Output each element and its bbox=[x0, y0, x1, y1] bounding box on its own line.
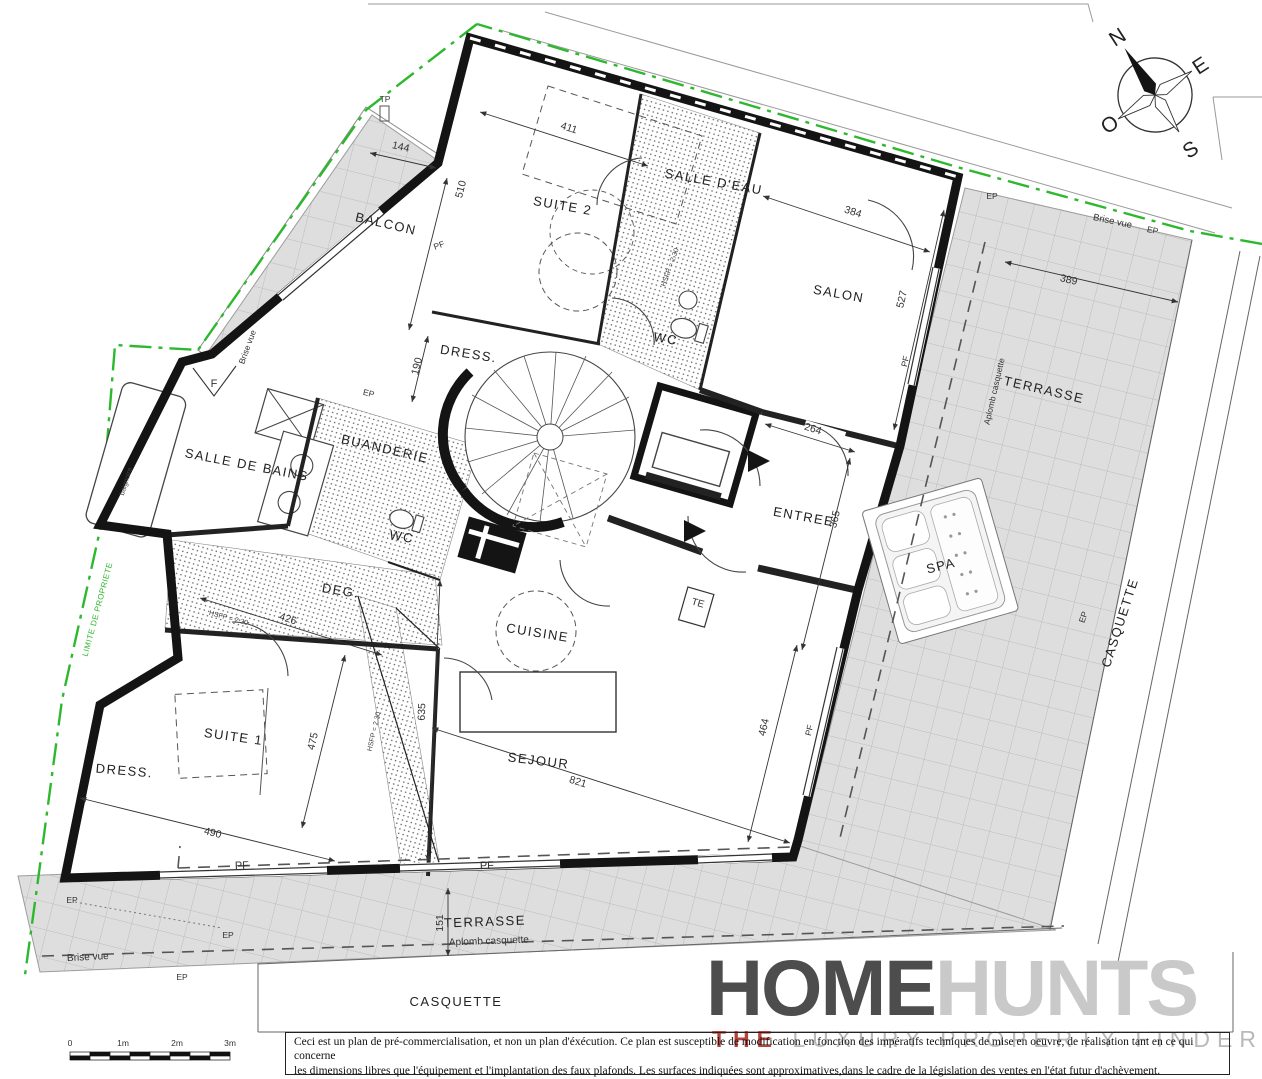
scale-0: 0 bbox=[68, 1038, 73, 1048]
compass-e: E bbox=[1188, 53, 1212, 80]
pf-bottom-2: PF bbox=[480, 860, 495, 872]
scale-1m: 1m bbox=[117, 1038, 129, 1048]
ep-bottom-left: EP bbox=[66, 895, 78, 905]
homehunts-logo: HOMEHUNTS bbox=[706, 948, 1246, 1027]
logo-home: HOME bbox=[706, 943, 935, 1032]
floor-plan-page: 144 411 510 190 384 527 389 264 365 426 … bbox=[0, 0, 1262, 1079]
brise-vue-bottom: Brise vue bbox=[67, 951, 110, 964]
svg-text:635: 635 bbox=[416, 703, 429, 721]
pf-bottom-1: PF bbox=[235, 860, 250, 872]
disclaimer-line-1: Ceci est un plan de pré-commercialisatio… bbox=[294, 1035, 1221, 1064]
scale-bar: 0 1m 2m 3m bbox=[68, 1038, 236, 1060]
ep-terrace: EP bbox=[222, 930, 234, 940]
scale-2m: 2m bbox=[171, 1038, 183, 1048]
logo-hunts: HUNTS bbox=[935, 943, 1197, 1032]
disclaimer-line-2: les dimensions libres que l'équipement e… bbox=[294, 1064, 1221, 1078]
f-label: F bbox=[211, 378, 218, 390]
ep-top-right: EP bbox=[986, 191, 998, 201]
basin-salle-deau bbox=[679, 291, 697, 309]
scale-3m: 3m bbox=[224, 1038, 236, 1048]
room-label-terrasse-bottom: TERRASSE bbox=[444, 913, 527, 931]
compass-s: S bbox=[1179, 136, 1203, 163]
disclaimer-box: Ceci est un plan de pré-commercialisatio… bbox=[285, 1032, 1230, 1075]
limite-propriete-label: LIMITE DE PROPRIETE bbox=[81, 561, 115, 657]
kitchen-island bbox=[460, 672, 616, 732]
floor-plan-drawing: 144 411 510 190 384 527 389 264 365 426 … bbox=[0, 0, 1262, 1079]
tp-label: TP bbox=[380, 94, 391, 104]
compass-o: O bbox=[1097, 111, 1123, 139]
ep-under-terrace: EP bbox=[176, 972, 188, 982]
casquette-bottom-label: CASQUETTE bbox=[410, 994, 503, 1009]
compass-n: N bbox=[1105, 24, 1130, 52]
